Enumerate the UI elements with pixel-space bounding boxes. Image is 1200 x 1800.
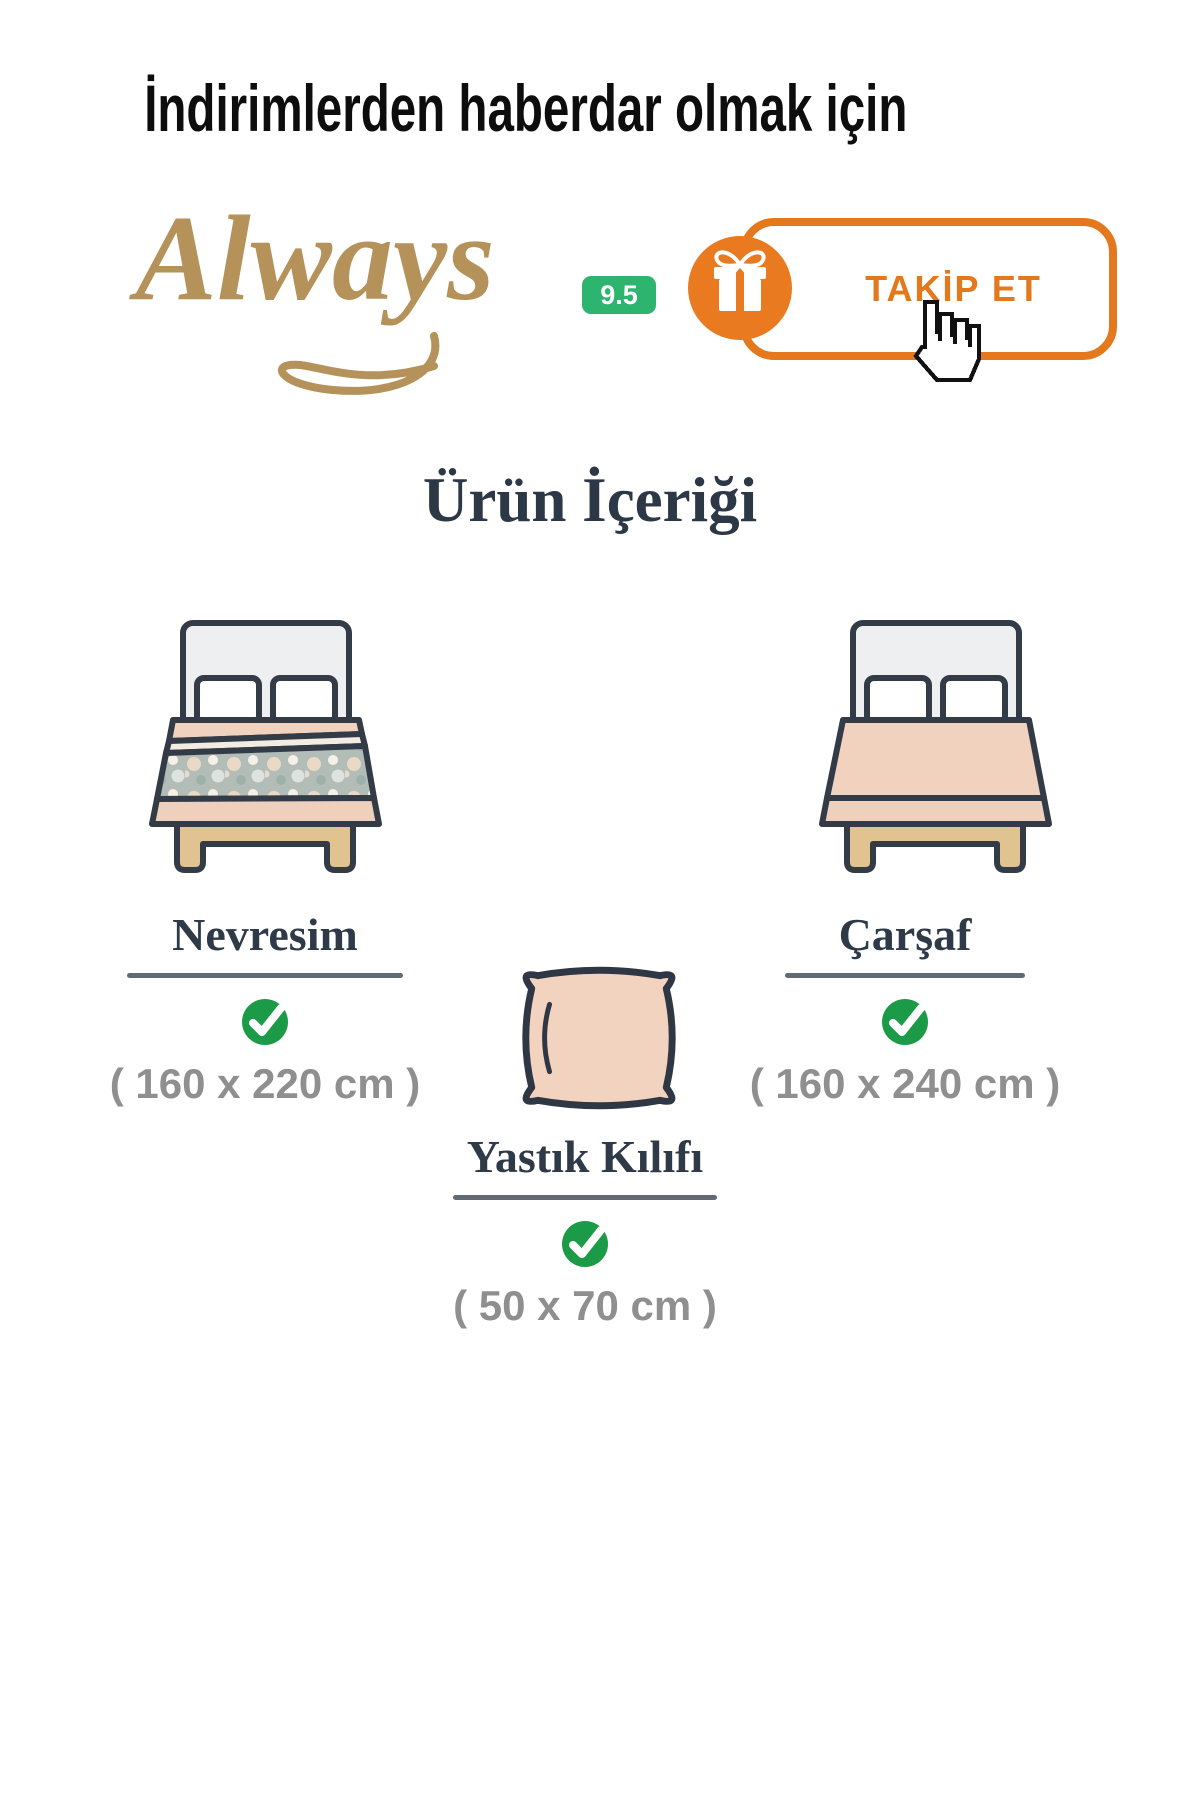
item-column-yastik: Yastık Kılıfı ( 50 x 70 cm ) xyxy=(415,1130,755,1330)
divider xyxy=(785,973,1025,978)
check-circle-icon xyxy=(237,994,293,1050)
item-label: Çarşaf xyxy=(735,908,1075,961)
item-size: ( 160 x 240 cm ) xyxy=(735,1060,1075,1108)
item-column-nevresim: Nevresim ( 160 x 220 cm ) xyxy=(95,908,435,1108)
item-column-carsaf: Çarşaf ( 160 x 240 cm ) xyxy=(735,908,1075,1108)
bed-duvet-illustration xyxy=(145,618,385,880)
item-size: ( 50 x 70 cm ) xyxy=(415,1282,755,1330)
hand-cursor-icon xyxy=(898,298,982,390)
item-label: Yastık Kılıfı xyxy=(415,1130,755,1183)
item-size: ( 160 x 220 cm ) xyxy=(95,1060,435,1108)
page-title: İndirimlerden haberdar olmak için xyxy=(144,70,886,146)
section-title: Ürün İçeriği xyxy=(0,464,1180,537)
check-circle-icon xyxy=(557,1216,613,1272)
rating-badge: 9.5 xyxy=(582,276,656,314)
item-label: Nevresim xyxy=(95,908,435,961)
brand-logo: Always xyxy=(120,198,510,320)
pillow-illustration xyxy=(506,964,692,1112)
divider xyxy=(127,973,403,978)
gift-icon xyxy=(688,236,792,340)
gift-glyph xyxy=(688,236,792,340)
bed-sheet-illustration xyxy=(815,618,1055,880)
product-info-image: İndirimlerden haberdar olmak için Always… xyxy=(0,0,1200,1800)
divider xyxy=(453,1195,717,1200)
logo-flourish xyxy=(238,332,453,410)
check-circle-icon xyxy=(877,994,933,1050)
